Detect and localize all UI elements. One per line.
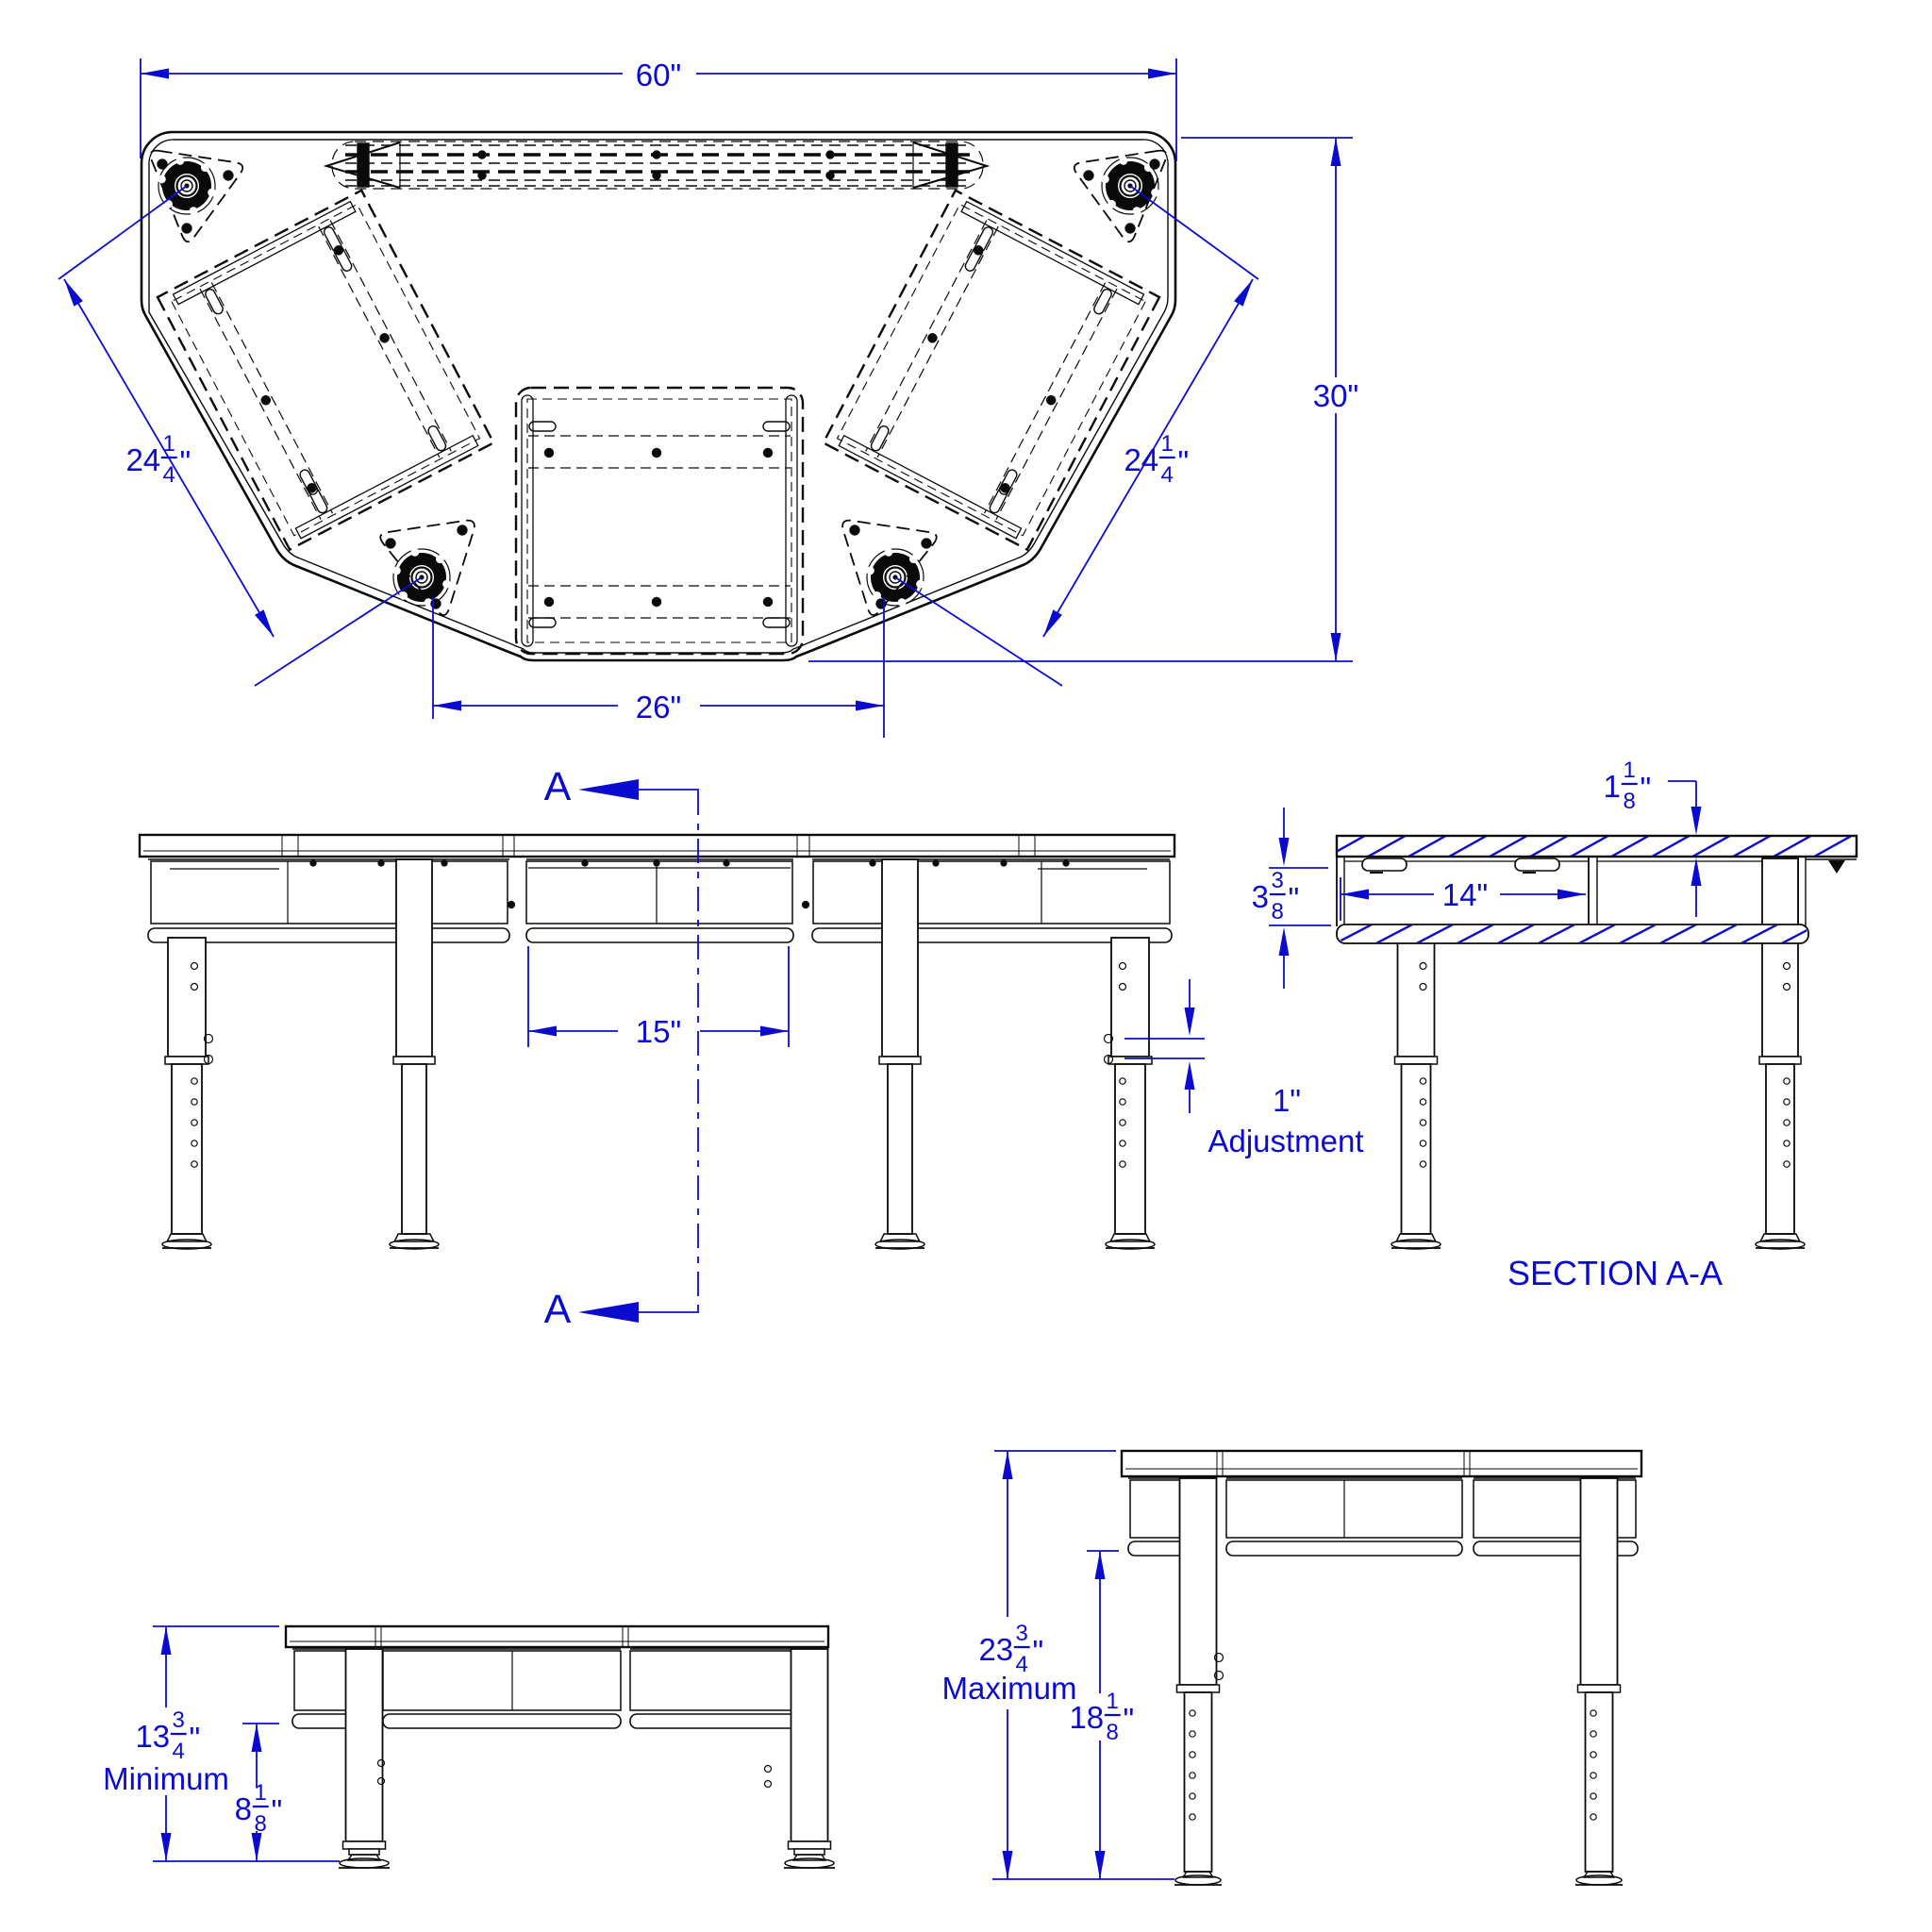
svg-text:8: 8 [235,1791,252,1826]
svg-text:Adjustment: Adjustment [1207,1124,1363,1158]
svg-text:": " [1033,1634,1044,1669]
svg-text:24: 24 [1124,442,1158,477]
svg-text:": " [190,1721,201,1756]
svg-text:3: 3 [1016,1621,1028,1646]
svg-text:8: 8 [1107,1720,1119,1745]
svg-text:60": 60" [636,58,681,92]
svg-text:30": 30" [1313,378,1358,413]
svg-text:24: 24 [125,442,160,477]
svg-text:26": 26" [636,690,681,724]
svg-text:": " [272,1793,283,1828]
svg-text:18: 18 [1069,1700,1104,1735]
svg-text:3: 3 [173,1707,185,1733]
svg-text:": " [1124,1702,1135,1737]
svg-text:A: A [544,1287,572,1332]
svg-text:14": 14" [1442,877,1488,912]
svg-text:SECTION A-A: SECTION A-A [1507,1254,1723,1292]
svg-text:1: 1 [1624,758,1636,783]
svg-text:4: 4 [1161,462,1174,488]
svg-text:23: 23 [978,1632,1013,1667]
svg-text:": " [180,444,192,479]
svg-text:3: 3 [1252,879,1269,914]
svg-text:1: 1 [1161,431,1174,457]
svg-text:1: 1 [1604,769,1621,804]
svg-text:Maximum: Maximum [941,1671,1076,1706]
svg-text:4: 4 [163,462,175,488]
svg-text:1: 1 [163,431,175,457]
svg-text:8: 8 [1624,789,1636,814]
svg-text:": " [1178,444,1190,479]
svg-text:": " [1641,771,1652,806]
svg-text:3: 3 [1272,868,1284,893]
svg-text:4: 4 [173,1739,185,1764]
svg-text:": " [1289,881,1300,916]
svg-text:15": 15" [636,1014,681,1049]
svg-text:13: 13 [135,1719,170,1754]
svg-text:Minimum: Minimum [103,1761,229,1796]
svg-text:1": 1" [1273,1083,1301,1118]
svg-text:1: 1 [255,1780,267,1806]
svg-text:1: 1 [1107,1689,1119,1714]
svg-text:8: 8 [1272,899,1284,924]
svg-text:8: 8 [255,1811,267,1837]
svg-text:A: A [544,764,572,809]
